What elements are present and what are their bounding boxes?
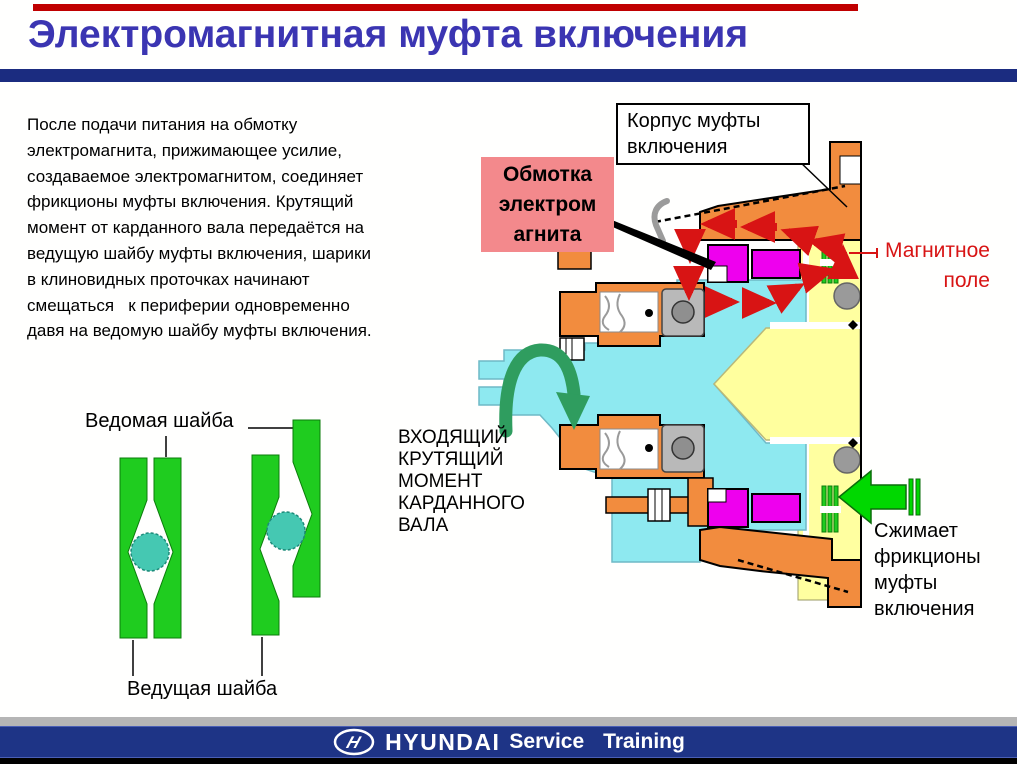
footer-gray-line: [0, 717, 1017, 726]
footer-service: Service: [509, 730, 584, 754]
hub-ball-lower: [834, 447, 860, 473]
bearing-housing-lower: [560, 415, 704, 478]
footer-bar: H HYUNDAI Service Training: [0, 726, 1017, 758]
slide: Электромагнитная муфта включения После п…: [0, 0, 1017, 764]
wedge-gap-bottom: [770, 437, 860, 444]
electromagnet-coil-upper: [708, 245, 800, 282]
ball-2: [267, 512, 305, 550]
footer-brand: HYUNDAI: [385, 729, 500, 756]
magnetic-field-label: Магнитное поле: [855, 236, 990, 296]
driven-washer-label: Ведомая шайба: [85, 410, 234, 433]
ball-1: [131, 533, 169, 571]
svg-text:H: H: [344, 732, 363, 751]
footer-training: Training: [603, 730, 685, 754]
washer-inset-diagram: [120, 420, 320, 676]
driving-washer-label: Ведущая шайба: [127, 678, 277, 701]
coil-label-box: Обмотка электром агнита: [481, 157, 614, 252]
compress-friction-label: Сжимает фрикционы муфты включения: [874, 518, 981, 622]
clutch-housing-label-box: Корпус муфты включения: [616, 103, 810, 165]
hyundai-logo-icon: H: [332, 728, 376, 756]
electromagnet-coil-lower: [708, 489, 800, 527]
footer-black-line: [0, 758, 1017, 764]
input-torque-label: ВХОДЯЩИЙ КРУТЯЩИЙ МОМЕНТ КАРДАННОГО ВАЛА: [398, 427, 525, 537]
clutch-diagram-svg: [0, 0, 1017, 764]
flange-notch: [840, 156, 861, 184]
wedge-gap-top: [770, 322, 860, 329]
friction-discs-lower: [820, 486, 841, 532]
